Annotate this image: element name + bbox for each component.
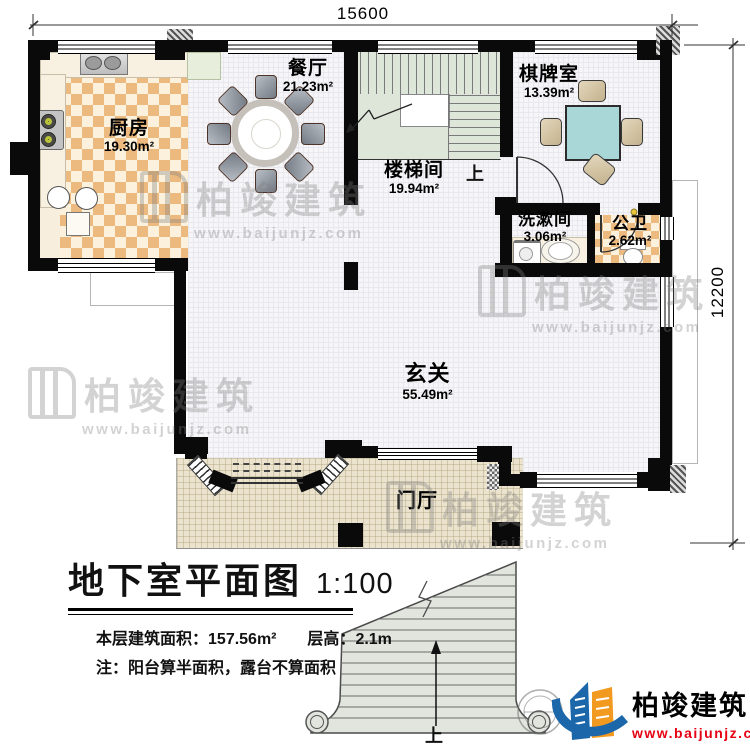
stair-newel — [306, 711, 328, 733]
wall — [28, 258, 58, 271]
room-label-wc: 公卫 2.62m² — [580, 214, 680, 248]
window — [228, 40, 332, 54]
porch-pillar — [338, 523, 363, 547]
window-well-left — [90, 272, 178, 306]
room-name: 公卫 — [580, 214, 680, 233]
chess-chair — [621, 118, 643, 146]
stairwell-up-label: 上 — [466, 160, 484, 186]
wall — [660, 40, 672, 217]
stove-burner — [41, 132, 56, 147]
wall — [174, 258, 186, 454]
room-label-kitchen: 厨房 19.30m² — [79, 118, 179, 154]
wall — [637, 472, 650, 488]
wall-column — [155, 40, 185, 60]
dining-chair — [301, 123, 325, 145]
window — [378, 40, 478, 54]
dining-chair — [255, 169, 277, 193]
room-area: 21.23m² — [258, 79, 358, 94]
cabinet — [187, 52, 221, 80]
wall-pier — [10, 142, 30, 175]
window — [535, 40, 637, 54]
bay-sill-line — [231, 477, 303, 479]
title-underline-2 — [68, 614, 353, 616]
plan-scale: 1:100 — [316, 568, 394, 601]
chess-chair — [540, 118, 562, 146]
room-name: 玄关 — [375, 362, 480, 387]
plan-note: 注：阳台算半面积，露台不算面积 — [96, 654, 394, 678]
plan-title: 地下室平面图 — [68, 552, 302, 604]
wall-hatch-column — [487, 464, 499, 490]
wall — [356, 446, 378, 458]
dining-chair — [207, 123, 231, 145]
floorplan-canvas: 厨房 19.30m² 餐厅 21.23m² 楼梯间 19.94m² 上 棋牌室 … — [0, 0, 750, 755]
floor-area-row: 本层建筑面积：157.56m² 层高：2.1m — [96, 625, 394, 649]
kitchen-stool — [47, 186, 70, 209]
stove-burner — [41, 114, 56, 129]
wall-hatch — [167, 29, 193, 40]
story-height-label: 层高： — [307, 631, 355, 648]
room-area: 2.62m² — [580, 233, 680, 248]
room-area: 55.49m² — [375, 387, 480, 402]
sink-basin — [85, 56, 102, 70]
washbasin-bowl — [548, 242, 573, 260]
room-label-chess: 棋牌室 13.39m² — [499, 64, 599, 100]
wall — [520, 472, 537, 488]
stair-lower-flight — [448, 94, 501, 160]
approval-stamp — [518, 690, 562, 734]
logo-name: 柏竣建筑 — [632, 684, 750, 723]
room-label-stairwell: 楼梯间 19.94m² — [364, 160, 464, 196]
wall-corner — [648, 458, 672, 491]
floor-area-value: 157.56m² — [208, 631, 277, 648]
room-label-porch: 门厅 — [367, 490, 467, 512]
kitchen-stool — [75, 187, 98, 210]
wall-column — [344, 262, 358, 290]
stair-upper-flight — [360, 52, 500, 94]
washing-machine-door — [519, 247, 533, 261]
wall — [660, 327, 672, 462]
outdoor-stair-up-label: 上 — [425, 722, 443, 748]
room-name: 楼梯间 — [364, 160, 464, 181]
room-area: 19.94m² — [364, 181, 464, 196]
logo-url: www.baijunjz.com — [632, 725, 750, 741]
floor-area-label: 本层建筑面积： — [96, 631, 208, 648]
dining-table-center — [251, 119, 281, 149]
room-name: 厨房 — [79, 118, 179, 139]
stair-newel — [528, 711, 550, 733]
story-height-value: 2.1m — [355, 631, 391, 648]
dimension-right-label: 12200 — [708, 242, 728, 342]
stair-newel-inner — [533, 716, 546, 729]
stair-newel-inner — [311, 716, 324, 729]
room-area: 13.39m² — [499, 85, 599, 100]
room-label-dining: 餐厅 21.23m² — [258, 58, 358, 94]
room-name: 棋牌室 — [499, 64, 599, 85]
bay-opening-dashes — [233, 470, 301, 472]
window — [58, 258, 155, 273]
logo-icon — [552, 682, 628, 740]
title-block: 地下室平面图 1:100 本层建筑面积：157.56m² 层高：2.1m 注：阳… — [68, 552, 394, 678]
room-name: 餐厅 — [258, 58, 358, 79]
porch-pillar — [492, 522, 520, 546]
company-logo: 柏竣建筑 www.baijunjz.com — [632, 684, 750, 741]
sink-basin — [104, 56, 121, 70]
bay-opening-dashes — [233, 463, 301, 465]
wall-hatch — [670, 465, 686, 493]
up-arrow-head — [431, 640, 441, 654]
window — [660, 277, 674, 327]
window — [378, 448, 477, 460]
window — [537, 474, 637, 488]
wall — [495, 263, 665, 277]
watermark-logo-icon — [28, 367, 76, 419]
room-area: 19.30m² — [79, 139, 179, 154]
stair-landing — [400, 94, 450, 127]
bay-sill-line — [231, 482, 303, 484]
title-underline — [68, 608, 353, 611]
window — [58, 40, 155, 54]
mahjong-table — [565, 105, 621, 161]
prep-table — [66, 212, 90, 236]
dimension-top-label: 15600 — [313, 4, 413, 24]
room-label-hall: 玄关 55.49m² — [375, 362, 480, 402]
room-name: 门厅 — [367, 490, 467, 512]
break-line — [419, 581, 431, 617]
